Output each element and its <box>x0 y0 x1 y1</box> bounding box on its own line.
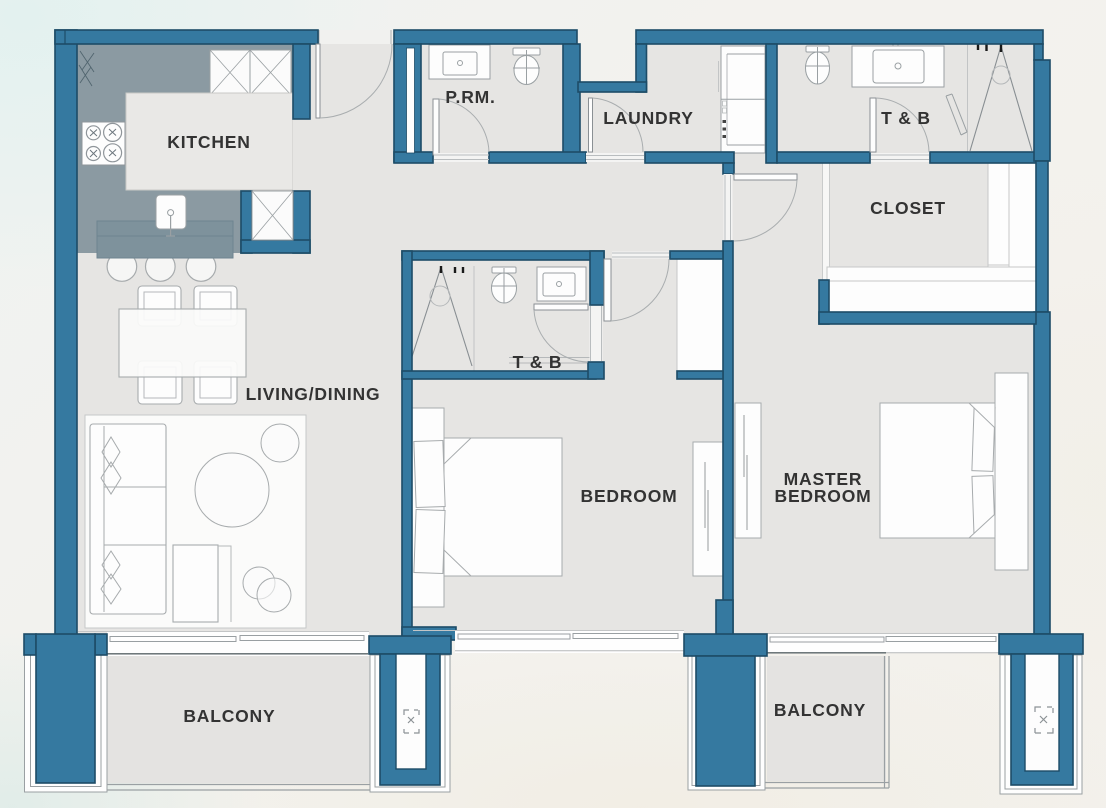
svg-text:LIVING/DINING: LIVING/DINING <box>246 384 381 404</box>
svg-text:LAUNDRY: LAUNDRY <box>603 108 694 128</box>
svg-text:BEDROOM: BEDROOM <box>775 486 872 506</box>
svg-text:BALCONY: BALCONY <box>183 706 275 726</box>
svg-text:T & B: T & B <box>881 108 931 128</box>
svg-text:P.RM.: P.RM. <box>445 87 495 107</box>
svg-text:T & B: T & B <box>513 352 563 372</box>
svg-text:KITCHEN: KITCHEN <box>167 132 250 152</box>
svg-text:BALCONY: BALCONY <box>774 700 866 720</box>
svg-text:BEDROOM: BEDROOM <box>581 486 678 506</box>
svg-text:CLOSET: CLOSET <box>870 198 946 218</box>
